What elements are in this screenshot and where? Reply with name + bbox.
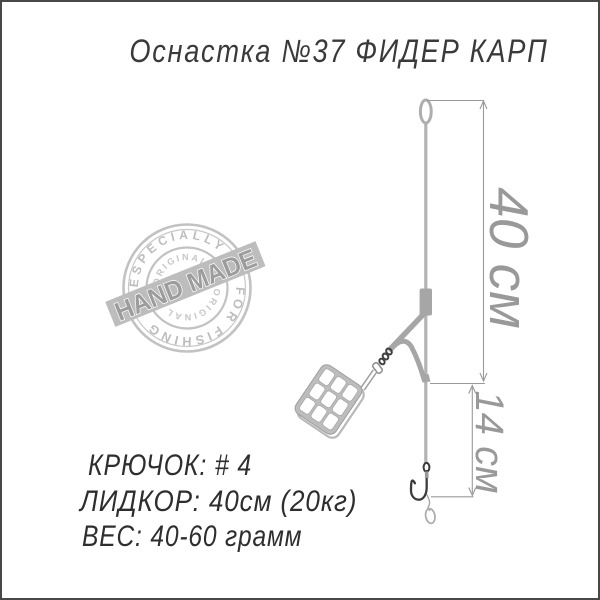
svg-text:14 см: 14 см: [467, 390, 511, 493]
svg-text:40 см: 40 см: [478, 187, 540, 329]
